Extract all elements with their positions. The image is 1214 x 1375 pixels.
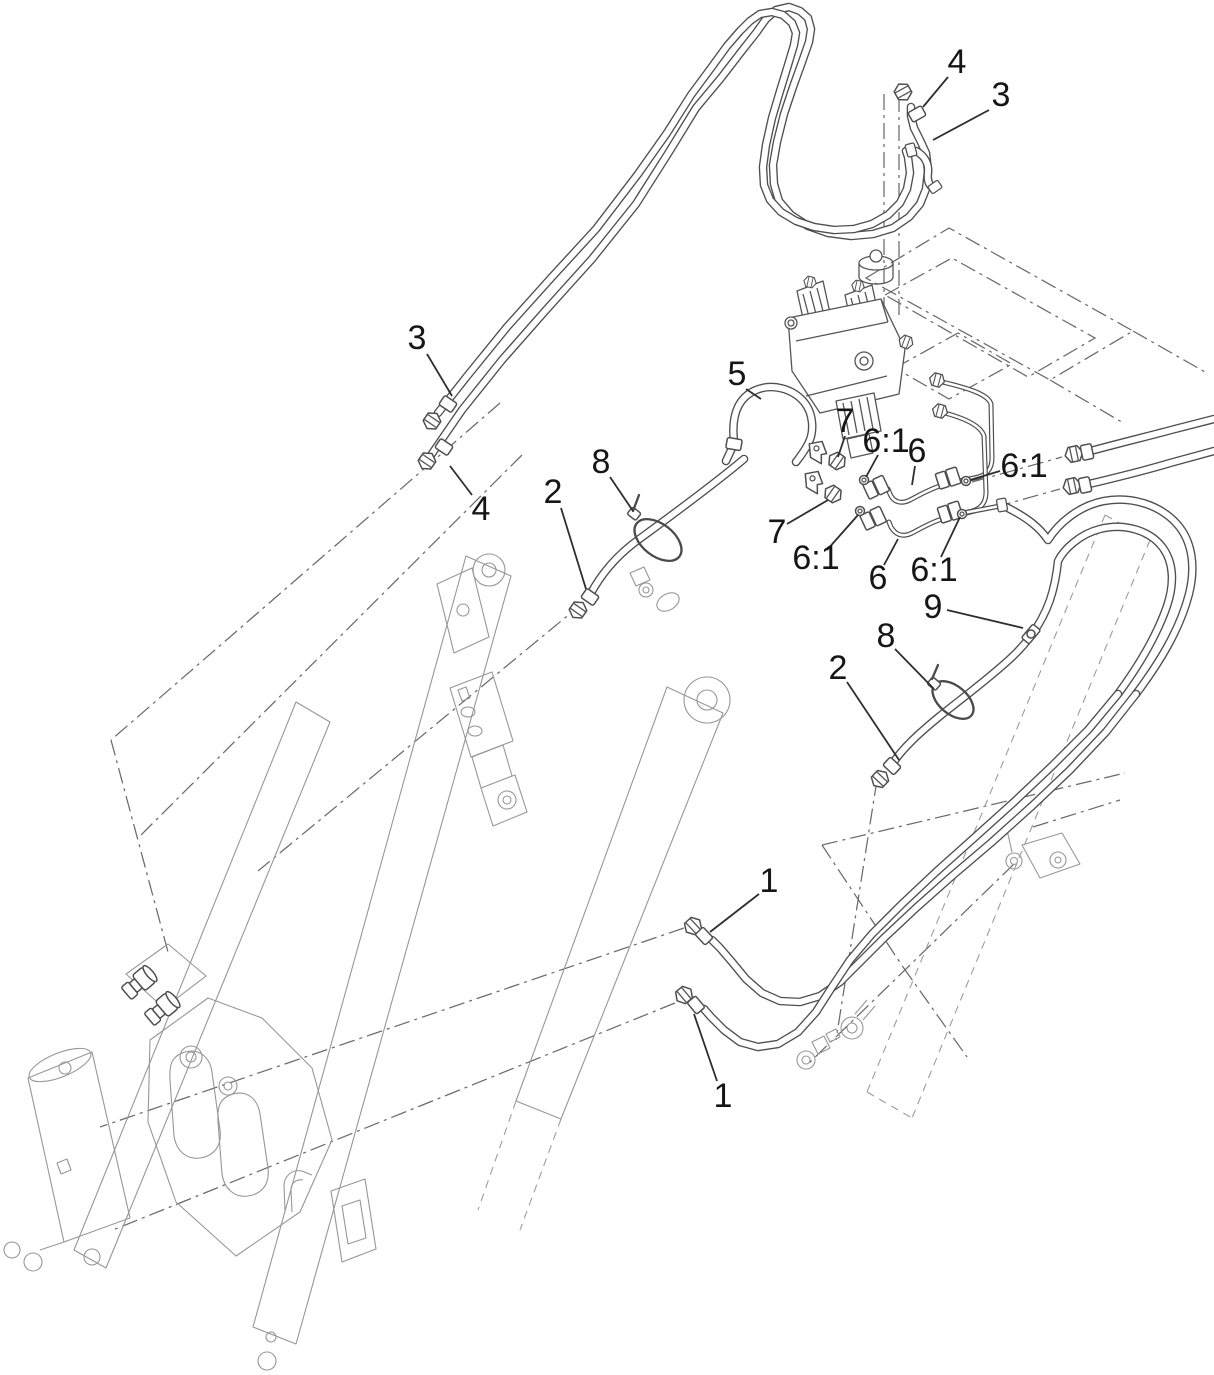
callout-leader-line [787,500,828,524]
callout-leader-line [450,466,472,495]
swivel-nut-icon [825,450,848,473]
elbow-nut-icon [892,80,914,103]
callout-label: 4 [472,490,491,528]
callout-label: 1 [760,862,779,900]
loader-link-arm [74,702,330,1268]
callout-label: 6:1 [792,539,839,577]
callout-label: 6 [869,559,888,597]
hose-guide-ghost [630,567,682,615]
callout-leader-line [610,477,633,511]
callout-leader-line [933,110,989,140]
tube-union-icon [935,467,961,490]
callout-leader-line [923,77,948,107]
callout-label: 8 [592,443,611,481]
valve-knob-icon [870,250,882,262]
callout-leader-line [710,894,759,932]
loader-arm-rear [253,556,511,1344]
callout-leader-line [895,649,934,689]
callout-label: 6 [908,432,927,470]
oring-icon [860,476,869,485]
callout-label: 2 [544,473,563,511]
hose-clamp-icon [1021,624,1040,644]
callout-label: 2 [829,649,848,687]
callout-leader-line [947,610,1023,628]
callout-label: 8 [877,617,896,655]
callout-label: 7 [768,513,787,551]
callout-leader-line [561,508,586,589]
right-arm-ghost [867,515,1150,1118]
callout-label: 4 [948,43,967,81]
lift-cylinder-ghost [4,1042,130,1271]
callout-leader-line [847,682,899,760]
callout-label: 3 [408,319,427,357]
callout-label: 7 [836,402,855,440]
hose-fittings [416,80,1094,1014]
callout-label: 6:1 [910,551,957,589]
parts-diagram-page: 433428576:166:176:166:198211 [0,0,1214,1375]
callout-label: 9 [924,588,943,626]
tilt-cylinder-ghost [437,568,527,826]
callout-leader-line [427,354,452,396]
callout-label: 3 [992,76,1011,114]
phantom-reference-lines [100,94,1205,1230]
callout-label: 5 [728,355,747,393]
callout-label: 6:1 [1000,447,1047,485]
loader-frame-outline [4,515,1150,1370]
parts-diagram-canvas: 433428576:166:176:166:198211 [0,0,1214,1375]
quick-coupler-icon [120,964,159,1001]
callout-label: 6:1 [862,422,909,460]
hydraulic-hoses [429,7,1214,1047]
mount-plate-ghost [126,944,376,1262]
callout-label: 1 [714,1077,733,1115]
